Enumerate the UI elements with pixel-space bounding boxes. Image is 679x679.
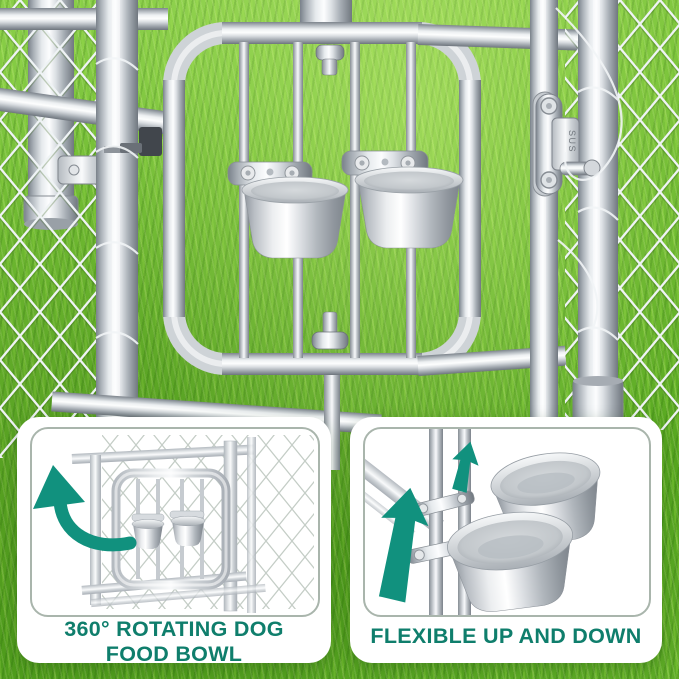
pivot-bolt-top <box>316 45 344 75</box>
feature-card-flexible: FLEXIBLE UP AND DOWN <box>350 417 662 663</box>
feature-illustration-rotating-bowl <box>30 427 320 617</box>
latch-label: SUS <box>567 130 577 153</box>
chain-link-fence-left <box>0 0 98 458</box>
caption-rotating-bowl: 360° ROTATING DOG FOOD BOWL <box>17 617 331 667</box>
gate-bar <box>350 42 360 358</box>
product-image: SUS <box>0 0 679 679</box>
pivot-bolt-bottom <box>312 312 348 349</box>
caption-rotating-bowl-line1: 360° ROTATING DOG <box>17 617 331 642</box>
food-bowl-right <box>342 151 463 248</box>
fence-post-right <box>573 0 623 425</box>
caption-flexible: FLEXIBLE UP AND DOWN <box>350 624 662 649</box>
feature-card-rotating-bowl: 360° ROTATING DOG FOOD BOWL <box>17 417 331 663</box>
mini-bowl <box>132 514 164 549</box>
feature-illustration-flexible <box>363 427 651 617</box>
caption-rotating-bowl-line2: FOOD BOWL <box>17 642 331 667</box>
kennel-rail-top-left <box>0 8 168 30</box>
gate-post <box>530 0 558 458</box>
fence-post-left <box>96 0 138 462</box>
